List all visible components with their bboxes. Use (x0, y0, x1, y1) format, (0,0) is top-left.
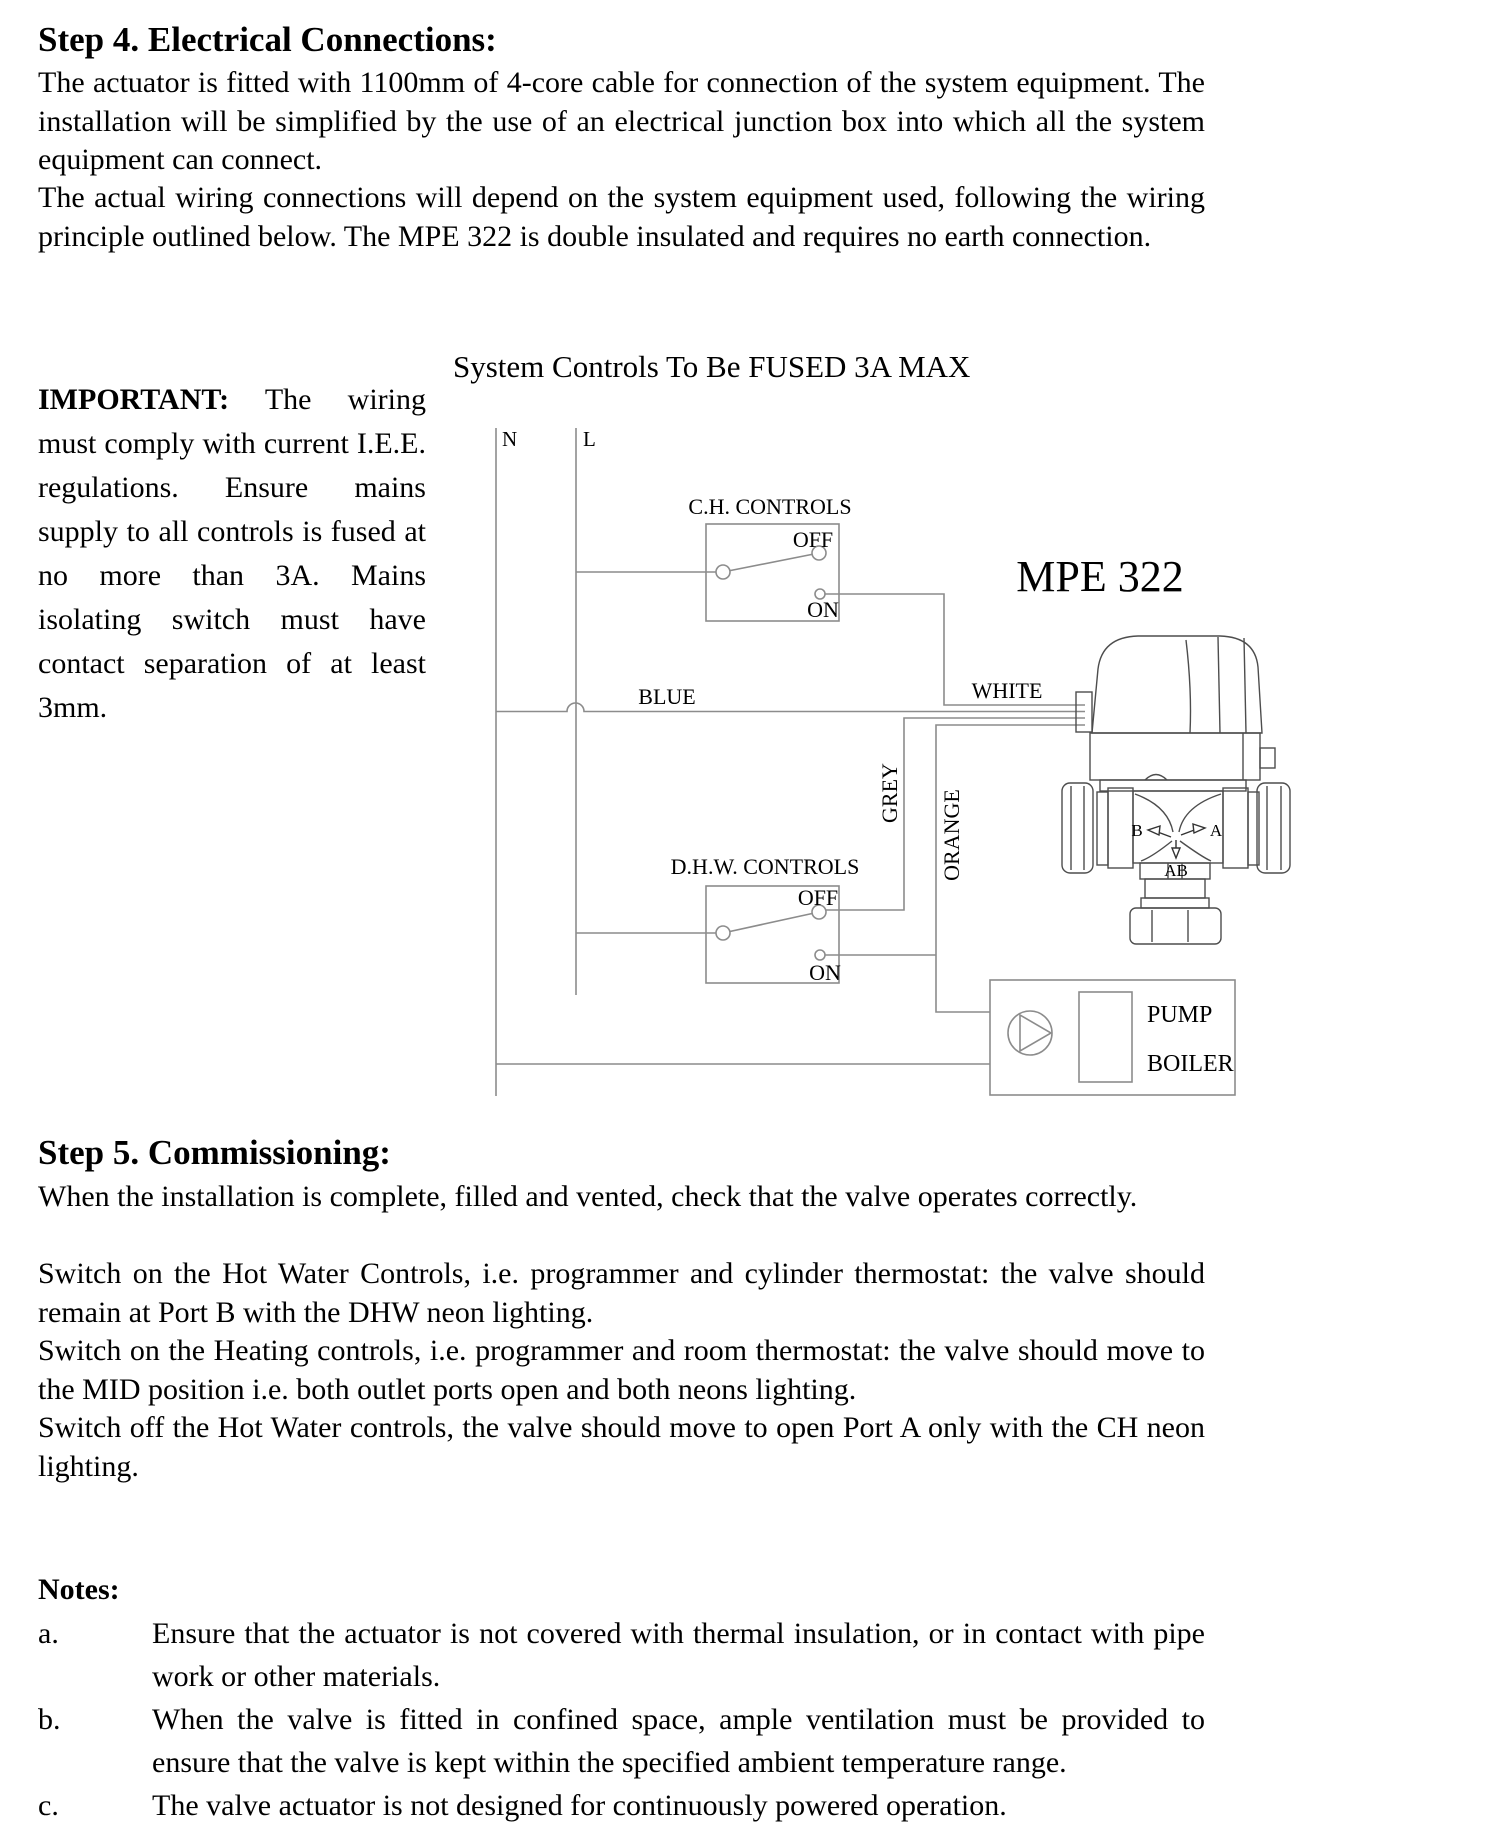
pump-boiler-box (990, 980, 1235, 1095)
step5-paragraph-1: When the installation is complete, fille… (38, 1178, 1205, 1217)
port-ab-label: AB (1164, 861, 1188, 880)
wiring-diagram: System Controls To Be FUSED 3A MAX N L C… (0, 0, 1500, 1833)
dhw-on-label: ON (809, 960, 841, 985)
pump-boiler-outline (990, 980, 1235, 1095)
step5-paragraph-2: Switch on the Hot Water Controls, i.e. p… (38, 1255, 1205, 1332)
note-text-a: Ensure that the actuator is not covered … (152, 1612, 1205, 1698)
dhw-controls-label: D.H.W. CONTROLS (671, 854, 860, 879)
note-text-c: The valve actuator is not designed for c… (152, 1784, 1205, 1827)
dhw-switch-pivot (716, 926, 730, 940)
pump-label: PUMP (1147, 1002, 1212, 1028)
dhw-switch-arm (723, 912, 819, 933)
blue-wire-label: BLUE (638, 684, 695, 709)
right-union-nut (1257, 783, 1290, 873)
step5-paragraph-4: Switch off the Hot Water controls, the v… (38, 1409, 1205, 1486)
port-b-label: B (1131, 821, 1142, 840)
orange-wire-label: ORANGE (939, 789, 964, 881)
ch-switch-pivot (716, 565, 730, 579)
live-label: L (583, 427, 596, 451)
valve-model-label: MPE 322 (1016, 552, 1183, 601)
ch-on-label: ON (807, 597, 839, 622)
pump-icon (1008, 1011, 1052, 1055)
pump-icon-triangle (1020, 1015, 1051, 1051)
diagram-title: System Controls To Be FUSED 3A MAX (453, 349, 970, 384)
note-text-b: When the valve is fitted in confined spa… (152, 1698, 1205, 1784)
white-wire (825, 594, 1085, 705)
actuator-dome (1092, 636, 1262, 733)
boiler-icon (1079, 992, 1132, 1082)
left-union-nut (1062, 783, 1093, 873)
note-item-a: a. Ensure that the actuator is not cover… (38, 1612, 1205, 1698)
page: Step 4. Electrical Connections: The actu… (0, 0, 1500, 1833)
ch-off-label: OFF (793, 527, 833, 552)
dhw-on-terminal (815, 950, 825, 960)
wires (496, 428, 1085, 1096)
ch-controls-label: C.H. CONTROLS (688, 494, 851, 519)
step5-paragraph-3: Switch on the Heating controls, i.e. pro… (38, 1332, 1205, 1409)
note-label-a: a. (38, 1612, 59, 1655)
neutral-label: N (502, 427, 517, 451)
port-a-label: A (1210, 821, 1223, 840)
actuator-body (1090, 733, 1260, 780)
ch-switch-arm (723, 553, 819, 572)
note-label-c: c. (38, 1784, 59, 1827)
boiler-label: BOILER (1147, 1051, 1234, 1077)
valve-drawing (1062, 636, 1290, 944)
note-label-b: b. (38, 1698, 61, 1741)
note-item-b: b. When the valve is fitted in confined … (38, 1698, 1205, 1784)
step5-heading: Step 5. Commissioning: (38, 1133, 391, 1173)
grey-wire-label: GREY (877, 763, 902, 823)
notes-heading: Notes: (38, 1572, 120, 1608)
note-item-c: c. The valve actuator is not designed fo… (38, 1784, 1205, 1827)
white-wire-label: WHITE (972, 678, 1043, 703)
dhw-off-label: OFF (798, 885, 838, 910)
